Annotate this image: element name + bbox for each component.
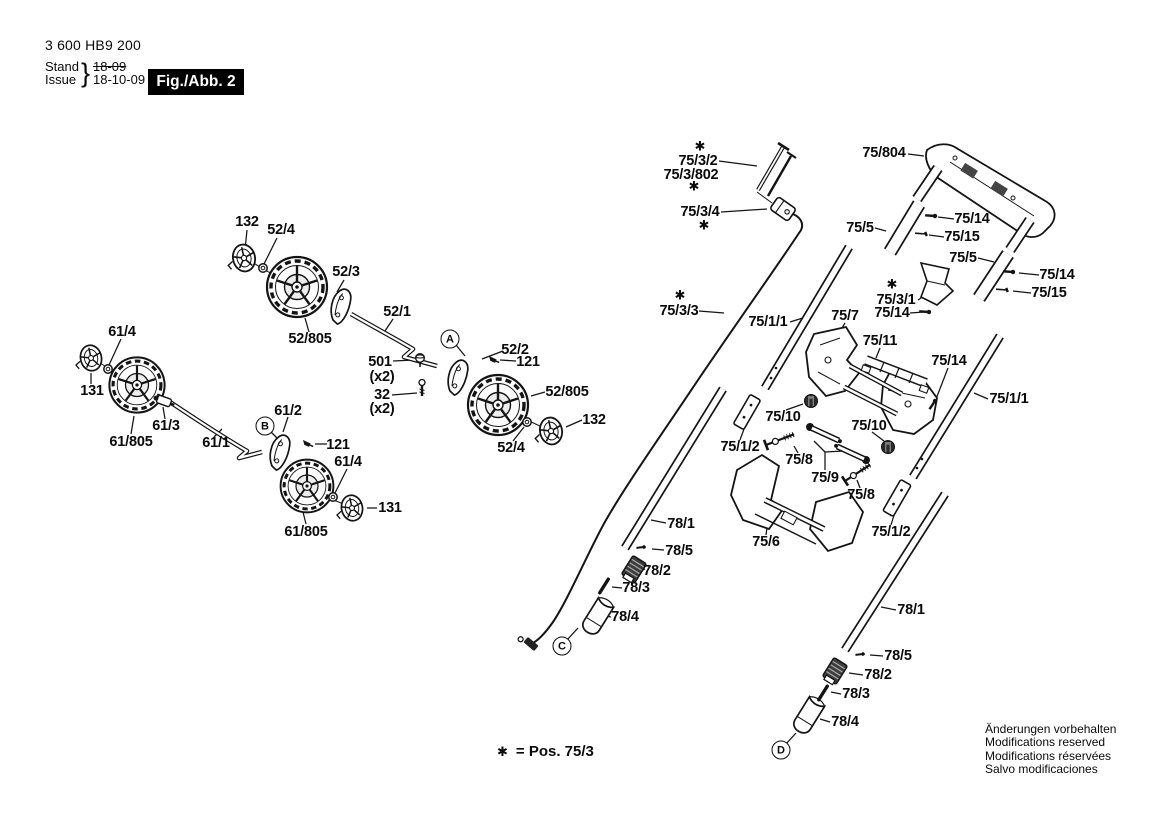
- screw-32: [419, 380, 425, 397]
- pin-78-5-left: [636, 544, 646, 553]
- title-block: 3 600 HB9 200 Stand Issue } 18-09 18-10-…: [45, 37, 145, 86]
- exploded-view-drawing: [0, 0, 1169, 826]
- washer-52-4-a: [523, 418, 531, 426]
- washer-52-4-upper: [259, 264, 267, 272]
- modifications-notice: Änderungen vorbehalten Modifications res…: [985, 723, 1116, 777]
- knob-75-10-left: [805, 395, 818, 408]
- issue-label: Issue: [45, 73, 79, 86]
- hubcap-131-b: [334, 493, 365, 524]
- screw-121-b: [302, 440, 314, 447]
- lever-75-9-lower: [833, 444, 871, 465]
- issue-block: Stand Issue } 18-09 18-10-09: [45, 60, 145, 86]
- washer-61-4-left: [104, 365, 112, 373]
- frame-75-6: [731, 455, 863, 551]
- plate-75-1-2-left: [733, 394, 760, 429]
- pin-75-14-a: [925, 211, 938, 221]
- hubcap-131-left: [73, 343, 104, 374]
- washer-61-4-b: [329, 493, 337, 501]
- handle-assembly-75-804: [917, 144, 1055, 250]
- brace-glyph: }: [81, 60, 90, 86]
- screw-121-a: [488, 356, 500, 363]
- pin-78-5-right: [855, 651, 865, 660]
- wheel-52-805-a: [468, 375, 528, 435]
- joint-75-3-4: [770, 197, 797, 222]
- bolt-assembly-75-3-2: [757, 143, 796, 203]
- pin-78-3-right: [819, 686, 827, 700]
- issue-date: 18-10-09: [93, 73, 145, 86]
- screw-75-8-left: [764, 429, 796, 450]
- knob-75-10-right: [882, 441, 895, 454]
- notice-line-en: Modifications reserved: [985, 736, 1116, 749]
- cap-78-4-right: [791, 694, 826, 736]
- pin-75-14-c: [919, 307, 932, 317]
- figure-label: Fig./Abb. 2: [148, 69, 244, 95]
- notice-line-fr: Modifications réservées: [985, 750, 1116, 763]
- parts-diagram-page: 3 600 HB9 200 Stand Issue } 18-09 18-10-…: [0, 0, 1169, 826]
- plug-501: [416, 354, 425, 367]
- hubcap-132-a: [532, 416, 565, 448]
- pin-75-15-b: [996, 285, 1009, 295]
- axle-rod-61-1: [170, 402, 262, 458]
- footnote-text: = Pos. 75/3: [516, 743, 594, 760]
- lever-75-9-upper: [805, 423, 843, 444]
- wheel-61-805-b: [281, 460, 334, 513]
- footnote: ✱ = Pos. 75/3: [497, 743, 594, 760]
- grip-tube-75-5-lower: [979, 254, 1008, 298]
- asterisk-icon: ✱: [497, 745, 508, 760]
- notice-line-de: Änderungen vorbehalten: [985, 723, 1116, 736]
- wheel-52-805-upper: [267, 257, 327, 317]
- coupler-78-2-left: [620, 555, 646, 584]
- notice-line-es: Salvo modificaciones: [985, 763, 1116, 776]
- plate-75-1-2-right: [883, 479, 911, 516]
- grip-tube-75-5-upper: [890, 204, 919, 252]
- clip-75-3-1: [921, 263, 953, 305]
- type-number: 3 600 HB9 200: [45, 37, 145, 53]
- wheel-61-805-left: [109, 357, 164, 412]
- hubcap-132-upper: [225, 243, 258, 275]
- coupler-78-2-right: [821, 657, 847, 686]
- pin-78-3-left: [600, 579, 608, 593]
- pin-75-15-a: [915, 229, 928, 239]
